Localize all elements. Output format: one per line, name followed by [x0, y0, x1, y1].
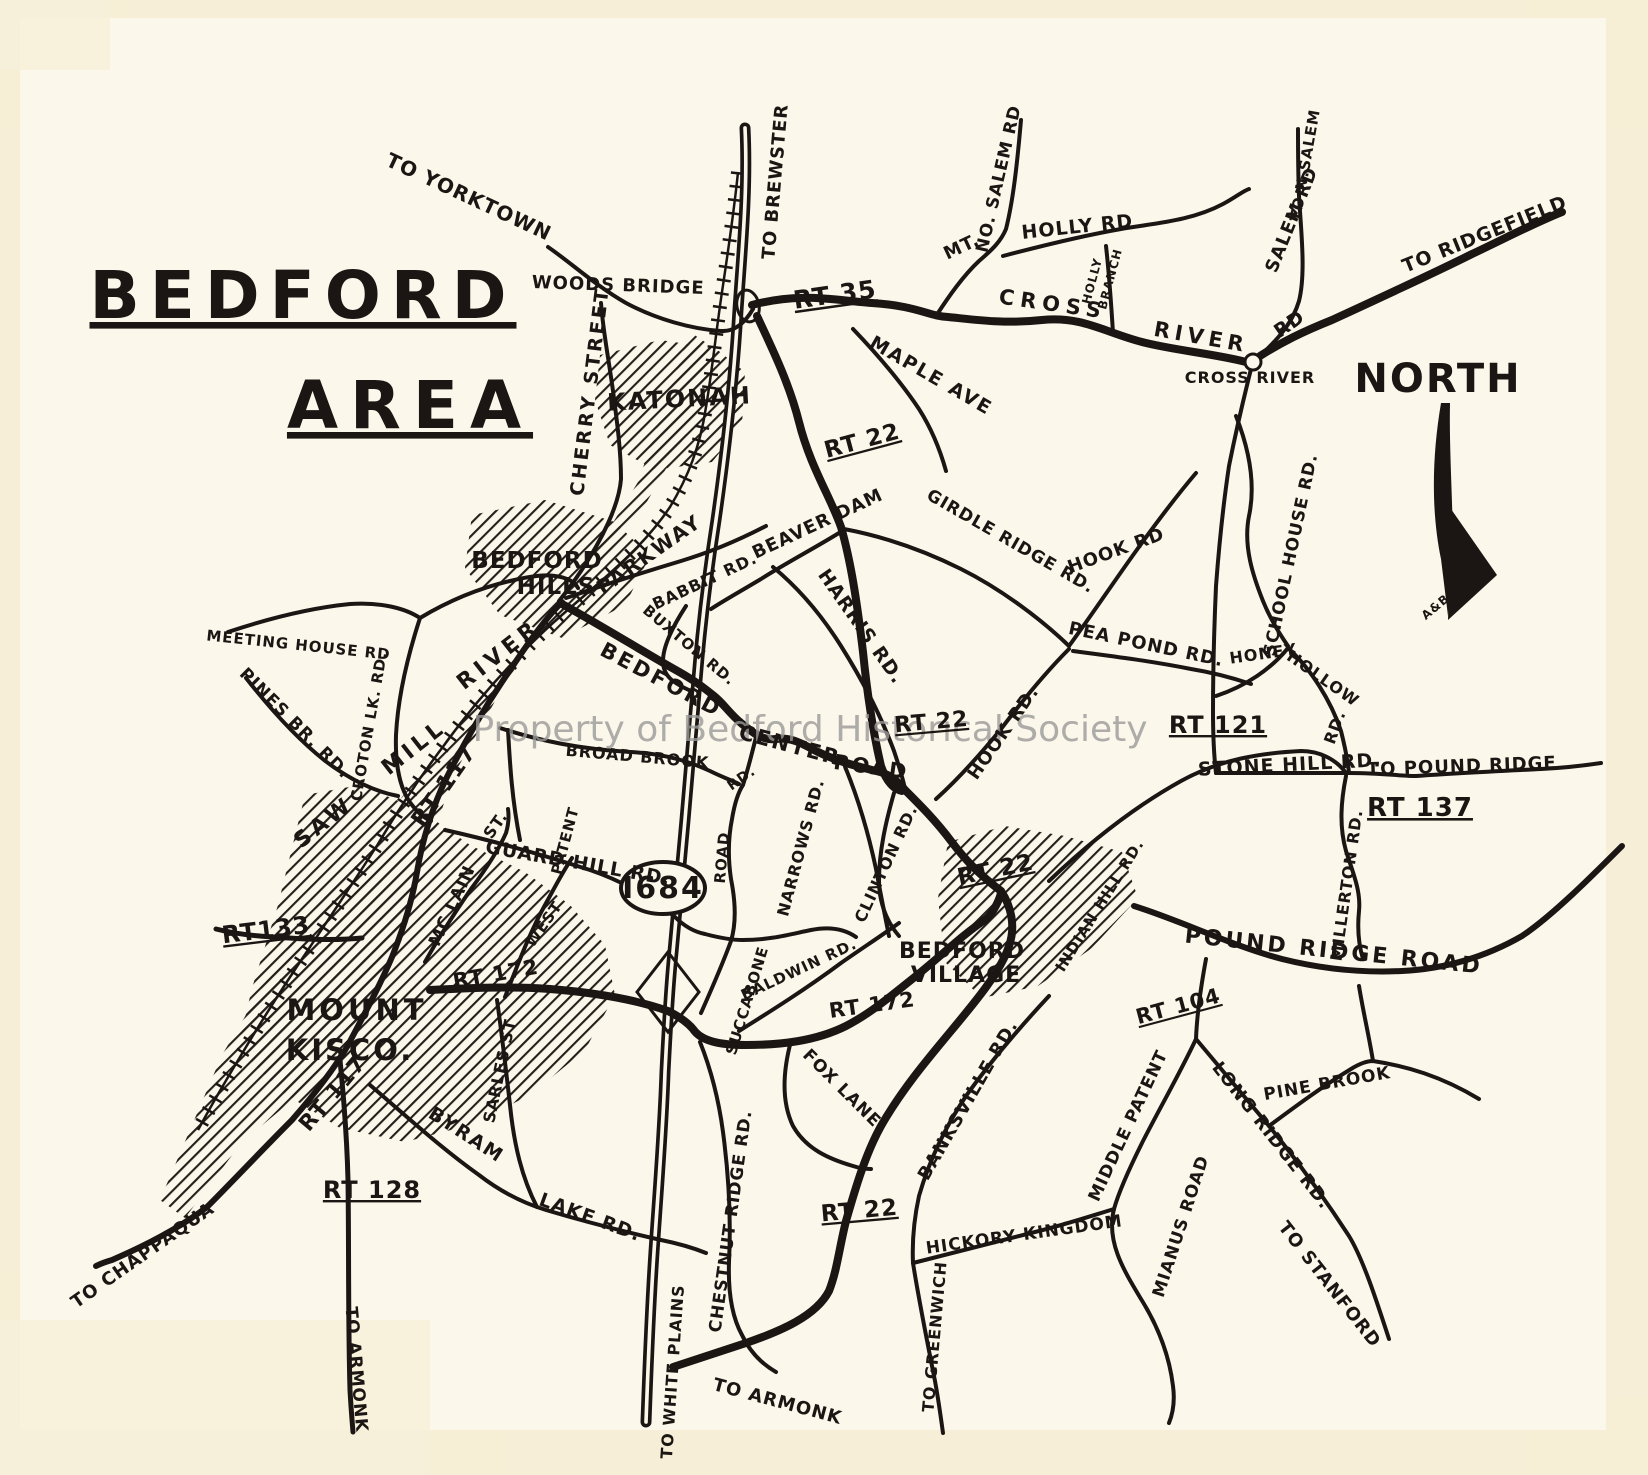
label-bedford: BEDFORD: [899, 939, 1025, 964]
label-rt-121: RT 121: [1169, 711, 1267, 739]
bedford-area-map-scan: BEDFORDAREAProperty of Bedford Historica…: [0, 0, 1648, 1475]
label-village: VILLAGE: [911, 963, 1021, 988]
label-bedford: BEDFORD: [90, 257, 517, 334]
label-rt-128: RT 128: [323, 1176, 421, 1204]
label-mount: MOUNT: [286, 993, 427, 1027]
label-bedford: BEDFORD: [471, 548, 602, 574]
label-i684: I684: [622, 871, 704, 906]
label-cross-river: CROSS RIVER: [1185, 368, 1315, 387]
label-area: AREA: [287, 367, 533, 444]
label-north: NORTH: [1354, 356, 1521, 402]
bedford-area-map: BEDFORDAREAProperty of Bedford Historica…: [0, 0, 1648, 1475]
label-hills: HILLS: [517, 574, 596, 600]
label-rt-137: RT 137: [1367, 793, 1473, 823]
